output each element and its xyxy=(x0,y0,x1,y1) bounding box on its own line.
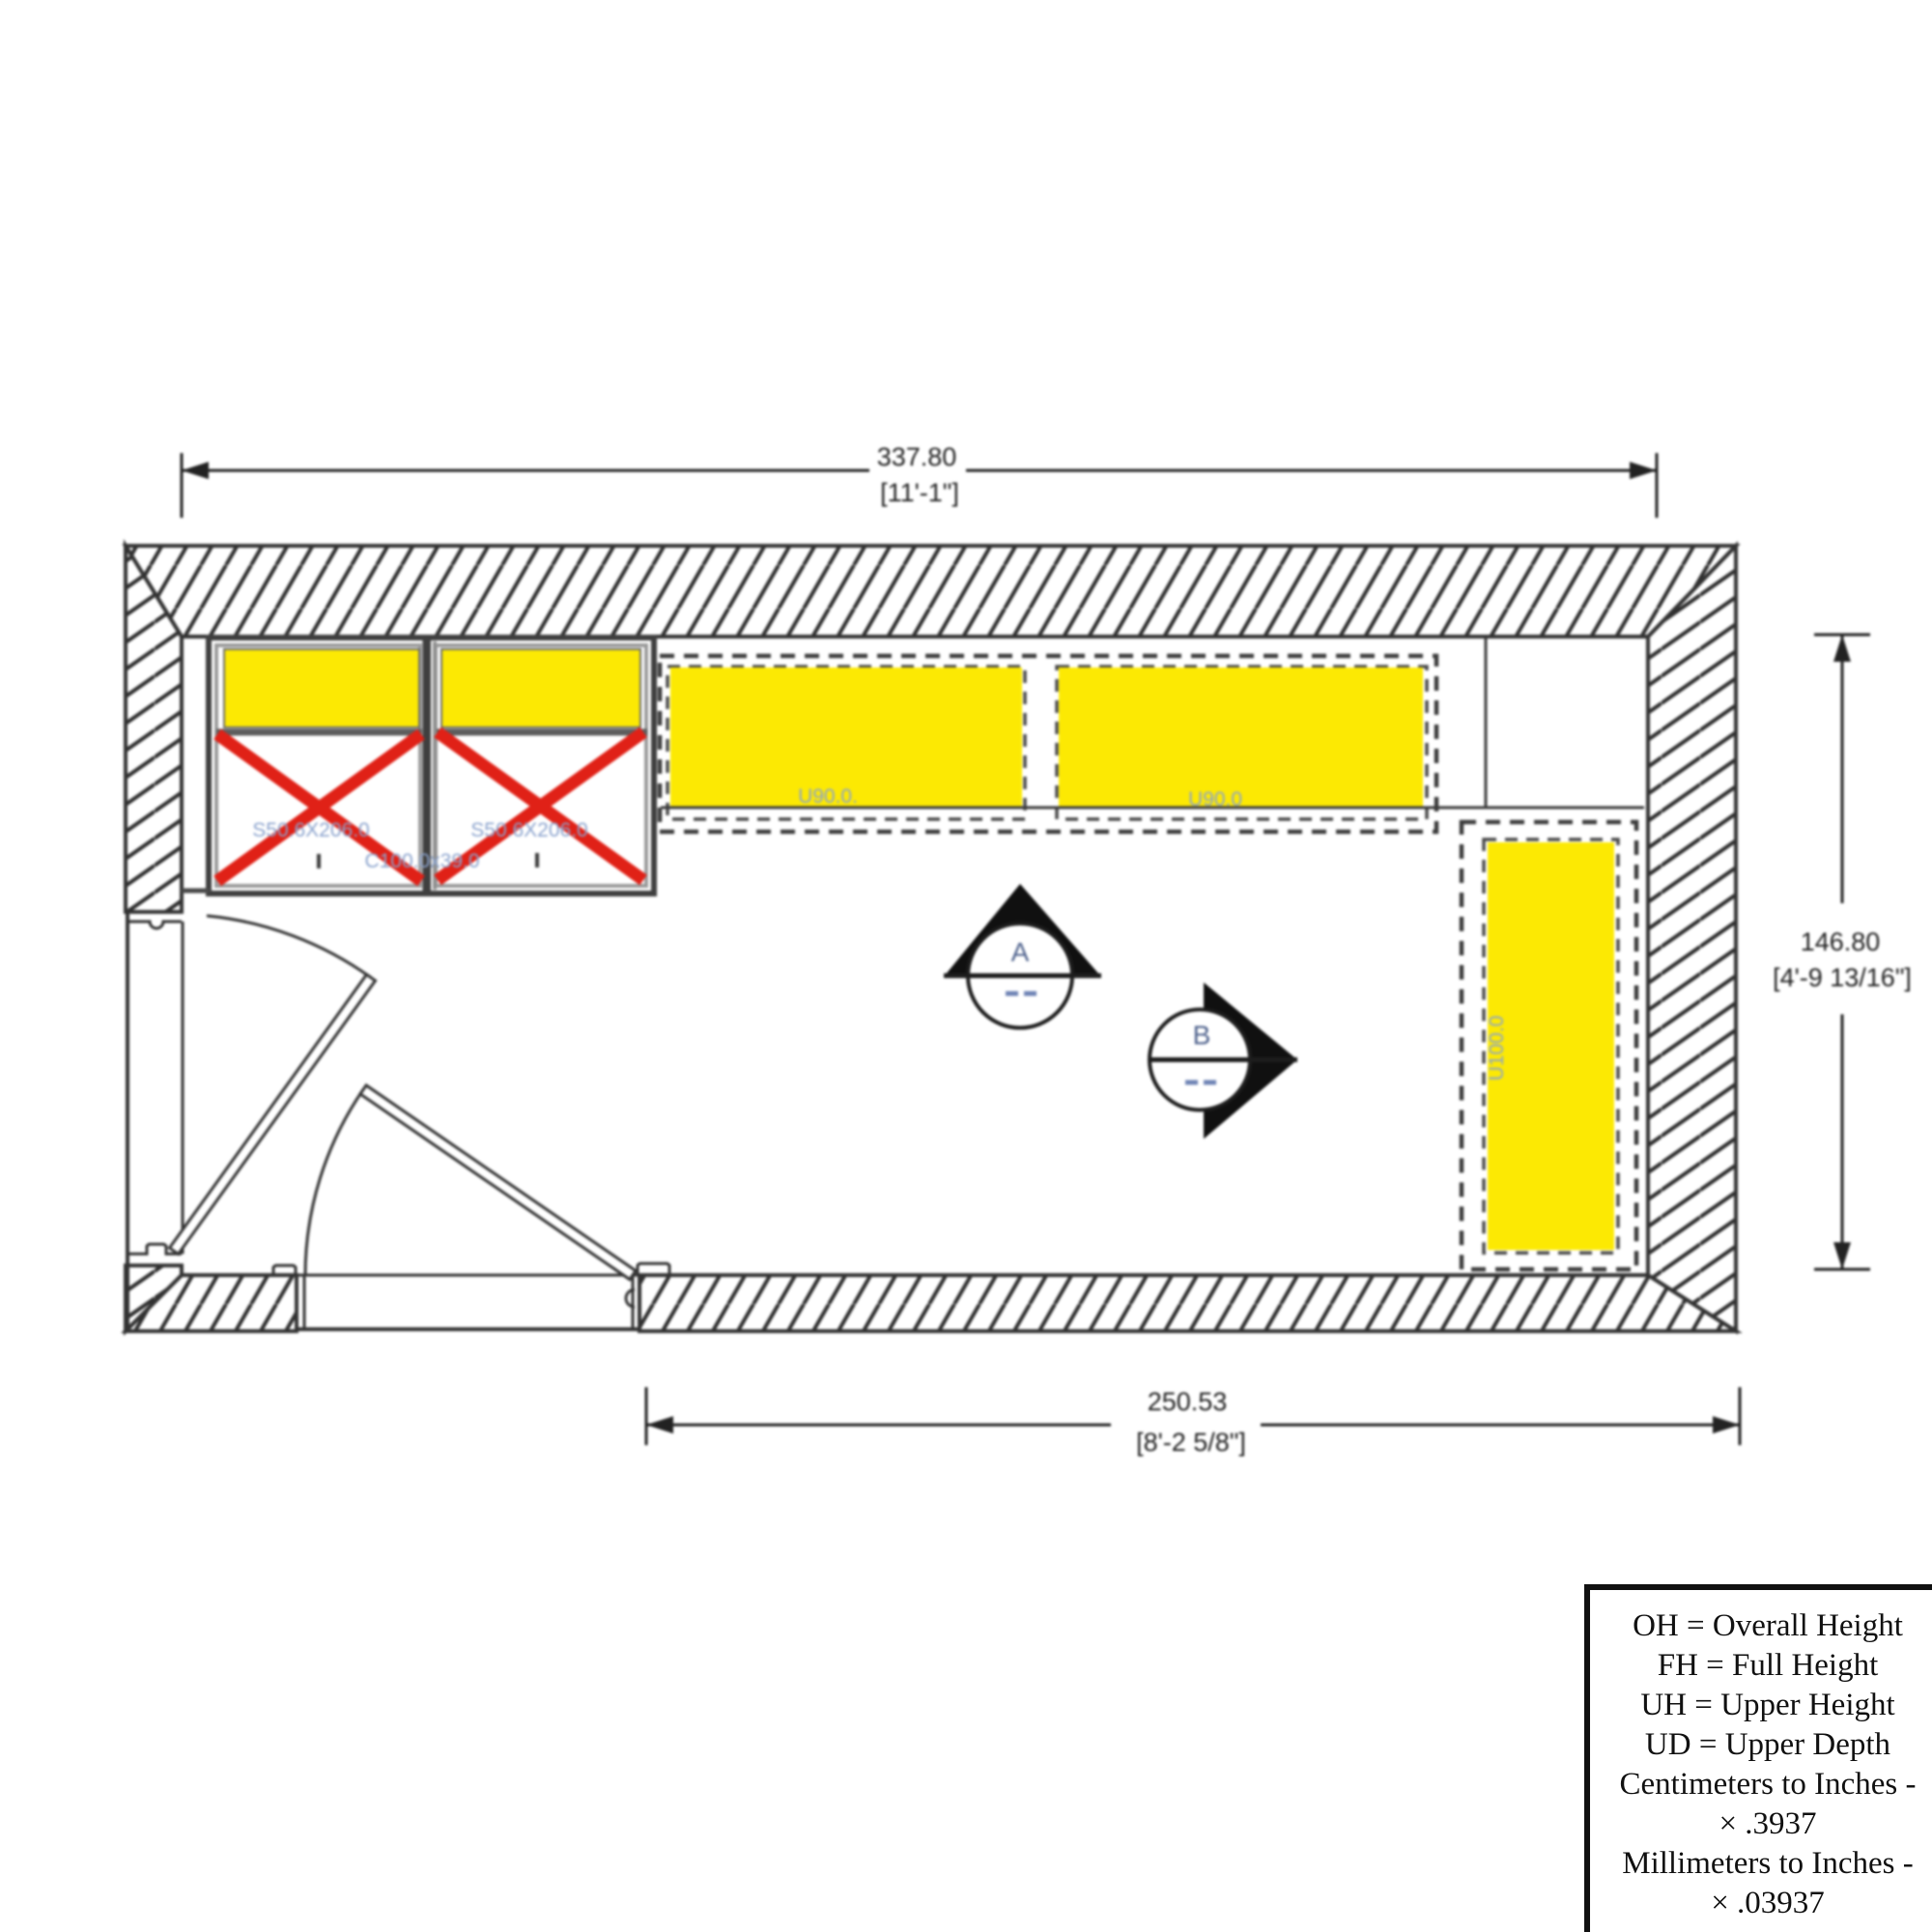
svg-text:U100.0: U100.0 xyxy=(1486,1015,1508,1081)
svg-text:337.80: 337.80 xyxy=(877,442,957,471)
svg-text:250.53: 250.53 xyxy=(1148,1387,1228,1416)
svg-text:C100.0x39.0: C100.0x39.0 xyxy=(364,850,479,872)
svg-text:S50.6X206.0: S50.6X206.0 xyxy=(252,819,369,841)
svg-text:B: B xyxy=(1193,1020,1211,1050)
svg-text:S50.6X206.0: S50.6X206.0 xyxy=(470,819,587,841)
svg-text:146.80: 146.80 xyxy=(1801,927,1881,956)
svg-text:[11'-1"]: [11'-1"] xyxy=(880,478,959,507)
svg-text:U90.0.: U90.0. xyxy=(798,785,858,808)
svg-text:A: A xyxy=(1011,937,1030,967)
svg-text:[4'-9 13/16"]: [4'-9 13/16"] xyxy=(1773,963,1912,992)
svg-text:[8'-2 5/8"]: [8'-2 5/8"] xyxy=(1136,1428,1246,1457)
